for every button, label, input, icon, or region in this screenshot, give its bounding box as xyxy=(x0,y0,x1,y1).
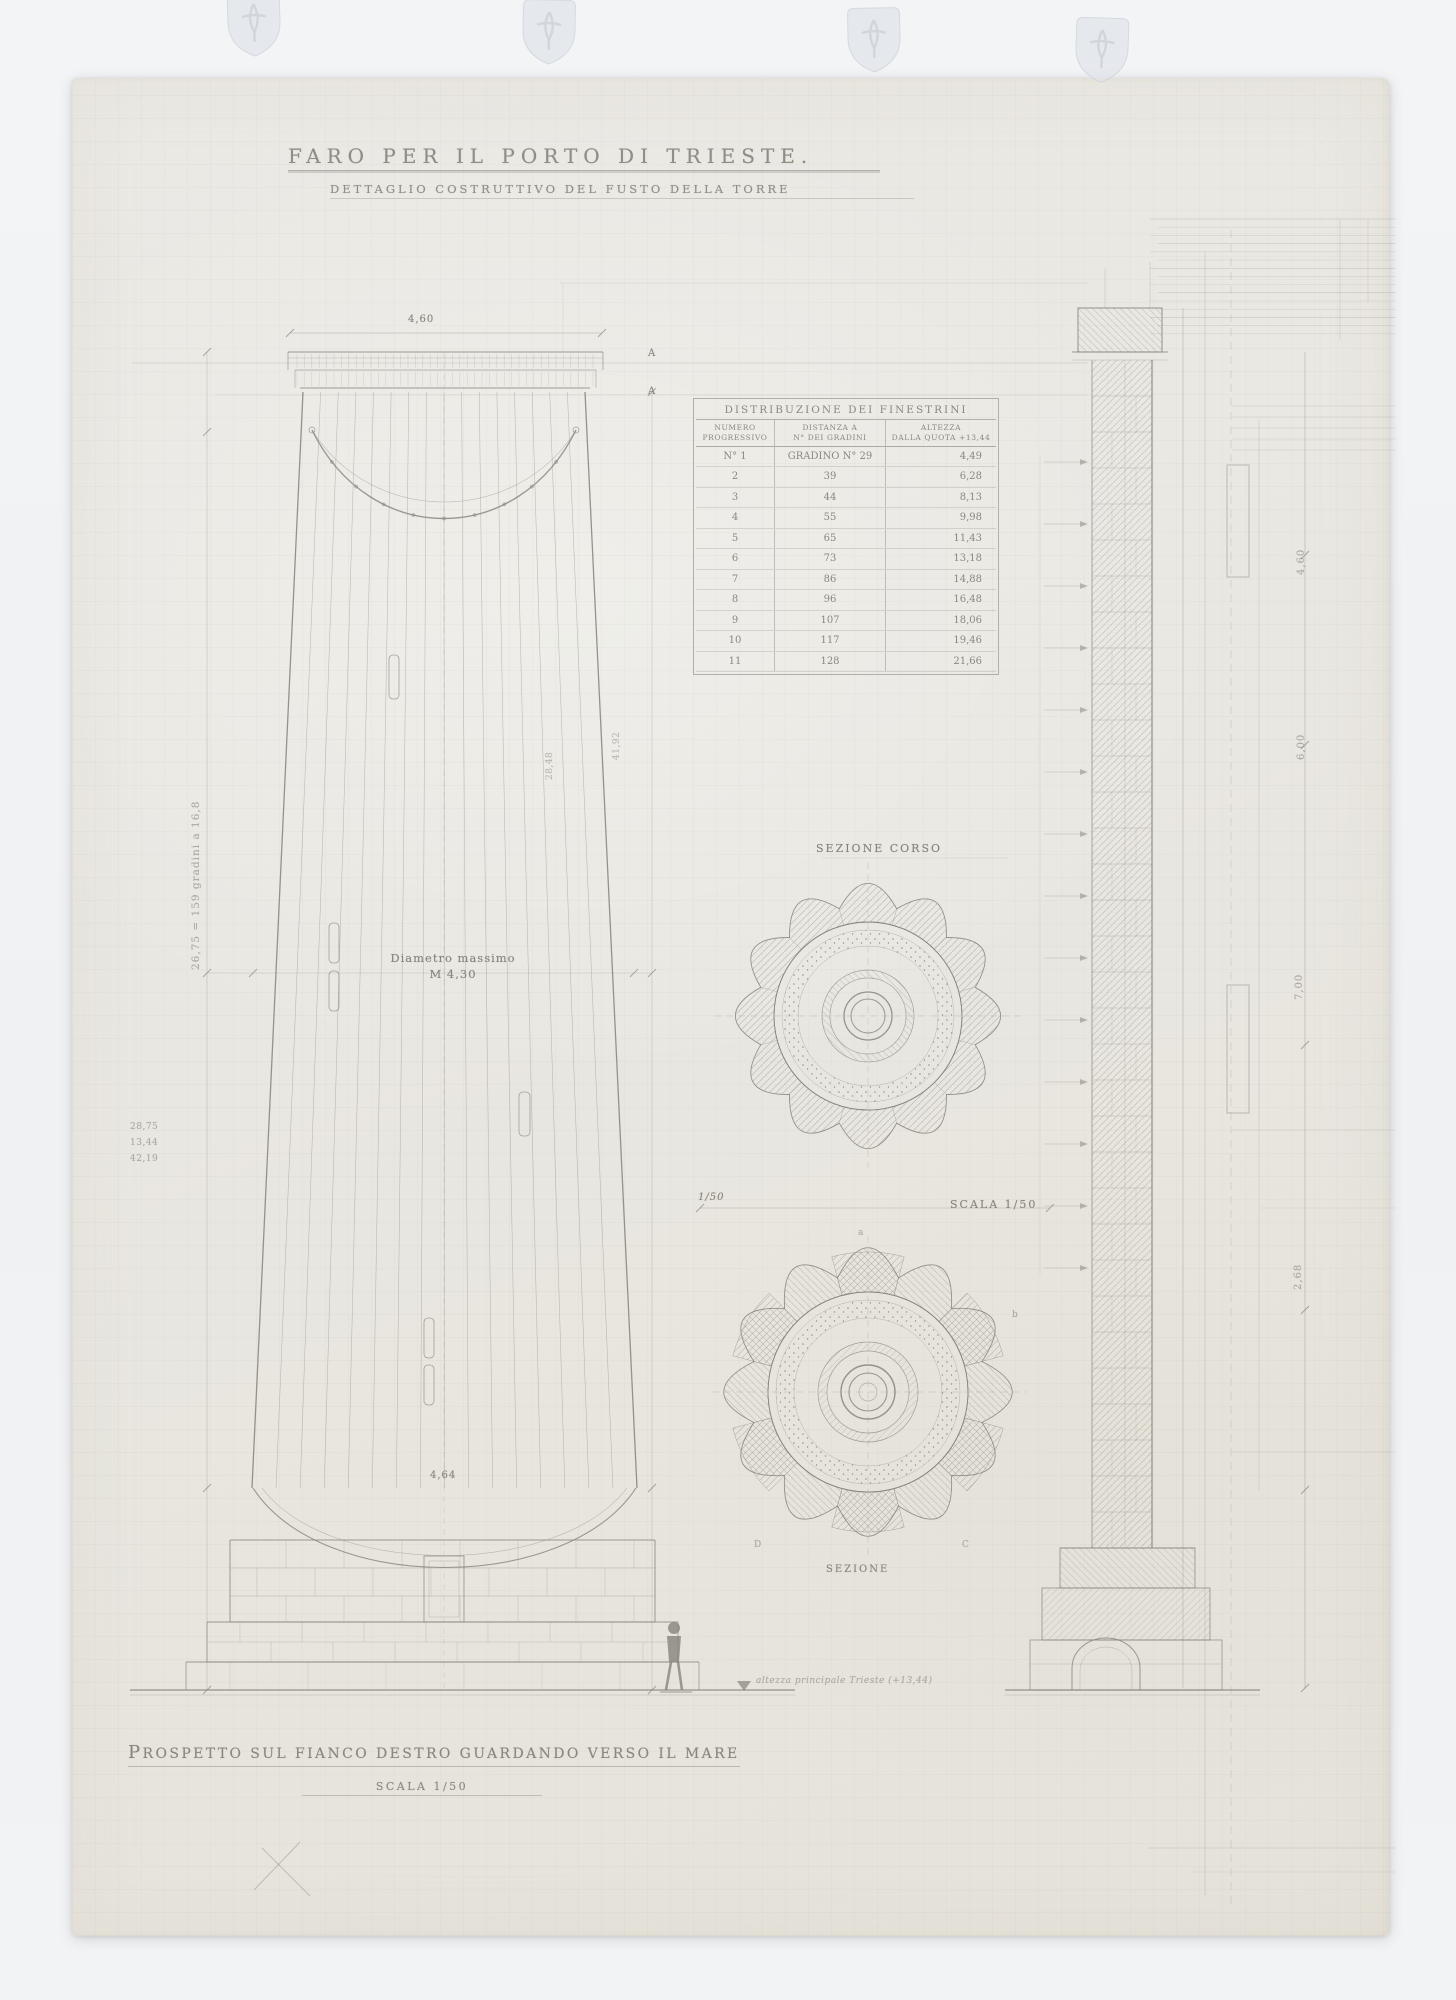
diameter-annotation: Diametro massimo M 4,30 xyxy=(368,951,538,982)
sea-level-note: altezza principale Trieste (+13,44) xyxy=(756,1676,933,1686)
lower-plan-label: SEZIONE xyxy=(826,1564,889,1575)
table-row: N° 1GRADINO N° 294,49 xyxy=(696,446,996,467)
wall-dim-2: 6,00 xyxy=(1296,734,1307,760)
shaft-annotation-a: 28,48 xyxy=(545,752,555,780)
table-row: 78614,88 xyxy=(696,569,996,590)
plan-letter-top: a xyxy=(858,1228,864,1238)
table-row: 2396,28 xyxy=(696,467,996,488)
margin-number: 28,75 xyxy=(130,1122,158,1132)
margin-number: 13,44 xyxy=(130,1138,158,1148)
plan-letter-bottom-left: D xyxy=(754,1540,762,1550)
table-title: DISTRIBUZIONE DEI FINESTRINI xyxy=(696,401,996,420)
drawing-sheet xyxy=(72,78,1390,1936)
plan-scale-right: SCALA 1/50 xyxy=(950,1198,1037,1211)
wall-dim-3: 7,00 xyxy=(1294,974,1305,1000)
table-row: 89616,48 xyxy=(696,590,996,611)
section-marker-a-top: A xyxy=(648,348,656,359)
table-row: 67313,18 xyxy=(696,549,996,570)
section-marker-a-bottom: A xyxy=(648,386,656,397)
wall-dim-1: 4,60 xyxy=(1296,549,1307,575)
shaft-annotation-b: 41,92 xyxy=(612,732,622,760)
base-dimension: 4,64 xyxy=(430,1470,456,1481)
top-width-dimension: 4,60 xyxy=(408,314,434,325)
col-header-numero: NUMEROPROGRESSIVO xyxy=(696,420,775,446)
table-row: 1011719,46 xyxy=(696,631,996,652)
plan-scale-left: 1/50 xyxy=(698,1192,724,1203)
finestrini-table: DISTRIBUZIONE DEI FINESTRINI NUMEROPROGR… xyxy=(693,398,999,675)
drawing-subtitle: DETTAGLIO COSTRUTTIVO DEL FUSTO DELLA TO… xyxy=(330,182,914,199)
table-row: 4559,98 xyxy=(696,508,996,529)
col-header-distanza: DISTANZA AN° DEI GRADINI xyxy=(775,420,886,446)
bottom-caption: PROSPETTO SUL FIANCO DESTRO GUARDANDO VE… xyxy=(128,1742,740,1767)
col-header-altezza: ALTEZZADALLA QUOTA +13,44 xyxy=(886,420,997,446)
table-row: 1112821,66 xyxy=(696,651,996,672)
drawing-title: FARO PER IL PORTO DI TRIESTE. xyxy=(288,144,880,171)
table-row: 56511,43 xyxy=(696,528,996,549)
photo-background: FARO PER IL PORTO DI TRIESTE. DETTAGLIO … xyxy=(0,0,1456,2000)
table-header-row: NUMEROPROGRESSIVO DISTANZA AN° DEI GRADI… xyxy=(696,420,996,446)
plan-letter-bottom-right: C xyxy=(962,1540,969,1550)
bottom-caption-scale: SCALA 1/50 xyxy=(302,1780,542,1796)
wall-dim-4: 2,68 xyxy=(1293,1264,1304,1290)
plan-letter-right: b xyxy=(1012,1310,1018,1320)
table-row: 3448,13 xyxy=(696,487,996,508)
watermark-shields xyxy=(227,0,1129,83)
margin-number: 42,19 xyxy=(130,1154,158,1164)
table-row: 910718,06 xyxy=(696,610,996,631)
steps-annotation: 26,75 = 159 gradini a 16,8 xyxy=(190,801,202,970)
upper-plan-label: SEZIONE CORSO xyxy=(816,842,942,855)
